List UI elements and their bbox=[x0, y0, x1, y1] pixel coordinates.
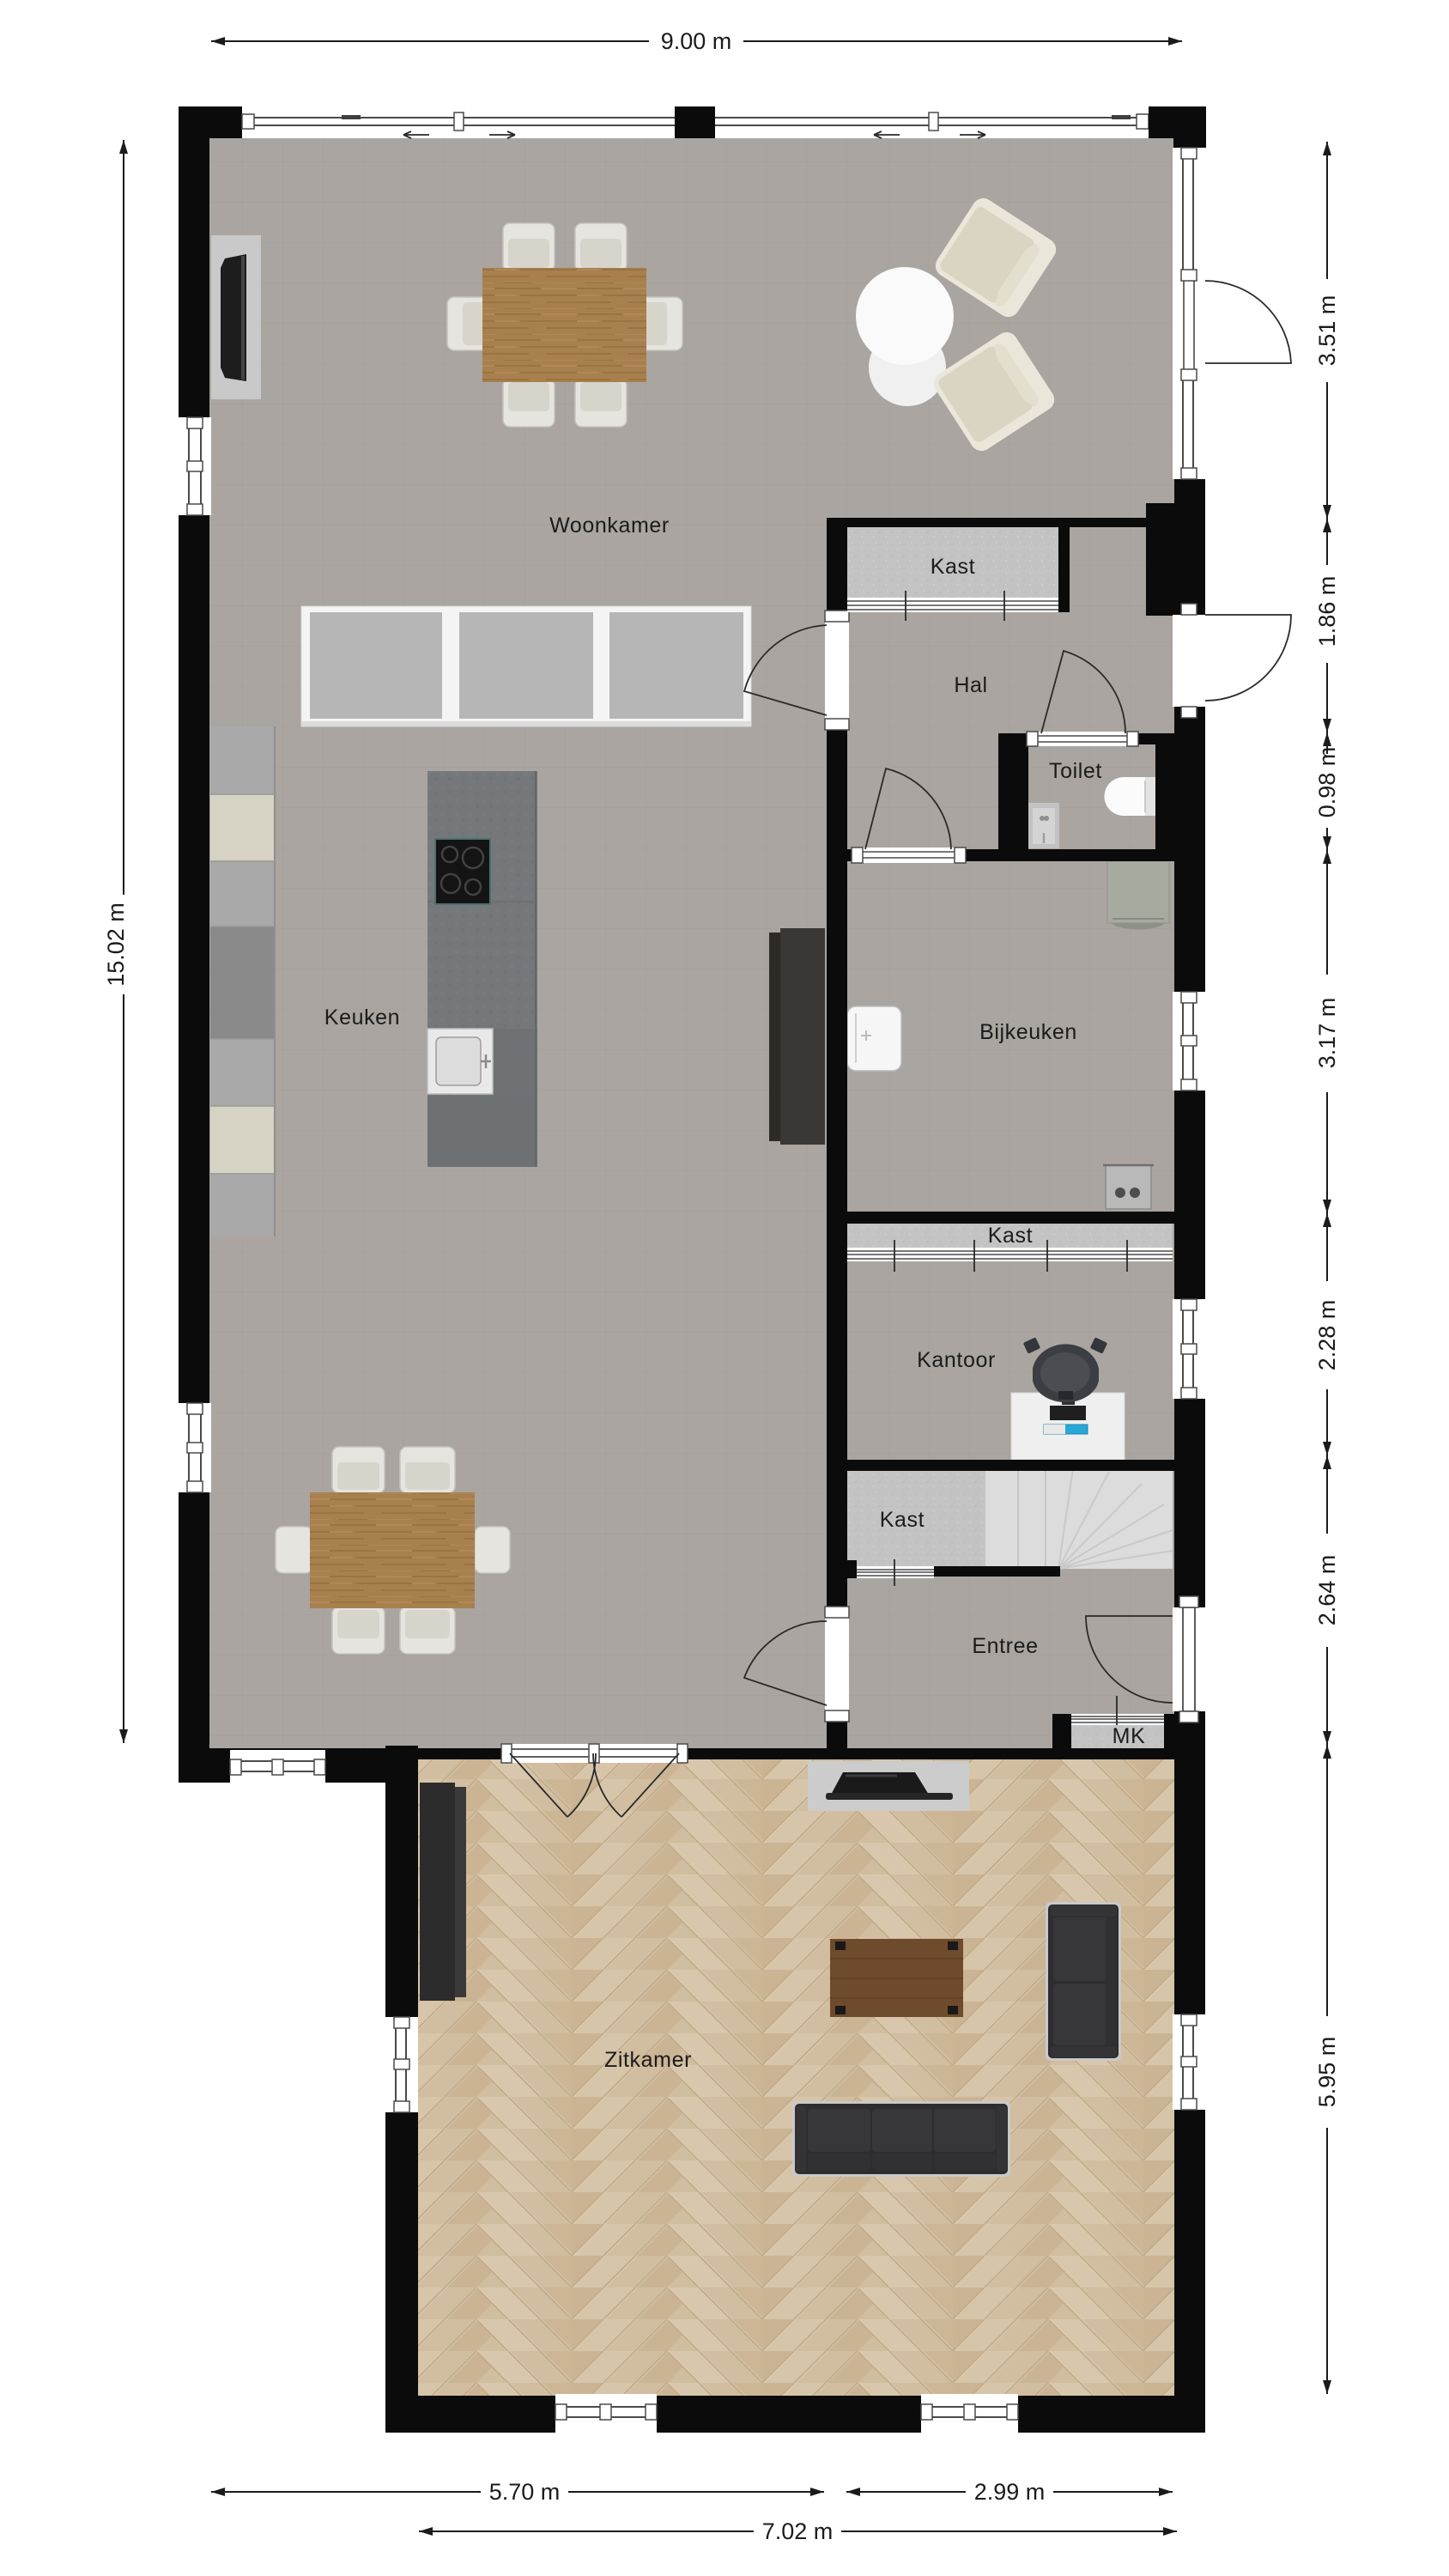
svg-text:Keuken: Keuken bbox=[324, 1005, 400, 1030]
svg-text:2.64 m: 2.64 m bbox=[1314, 1555, 1340, 1626]
svg-text:15.02 m: 15.02 m bbox=[103, 902, 129, 987]
svg-text:2.99 m: 2.99 m bbox=[974, 2479, 1046, 2505]
svg-text:3.51 m: 3.51 m bbox=[1314, 295, 1340, 367]
svg-text:MK: MK bbox=[1113, 1724, 1146, 1748]
svg-text:2.28 m: 2.28 m bbox=[1314, 1300, 1340, 1371]
svg-text:Toilet: Toilet bbox=[1049, 759, 1102, 783]
svg-text:1.86 m: 1.86 m bbox=[1314, 576, 1340, 647]
svg-text:5.95 m: 5.95 m bbox=[1314, 2037, 1340, 2108]
svg-text:7.02 m: 7.02 m bbox=[762, 2518, 834, 2544]
svg-text:Bijkeuken: Bijkeuken bbox=[979, 1020, 1077, 1044]
svg-text:Zitkamer: Zitkamer bbox=[604, 2048, 692, 2072]
svg-text:Hal: Hal bbox=[954, 673, 987, 697]
svg-text:0.98 m: 0.98 m bbox=[1314, 747, 1340, 818]
svg-text:Entree: Entree bbox=[972, 1634, 1038, 1658]
svg-text:Woonkamer: Woonkamer bbox=[549, 513, 670, 538]
svg-text:3.17 m: 3.17 m bbox=[1314, 998, 1340, 1069]
svg-text:Kantoor: Kantoor bbox=[917, 1348, 996, 1372]
svg-text:Kast: Kast bbox=[931, 555, 975, 579]
svg-text:Kast: Kast bbox=[880, 1508, 925, 1532]
svg-text:5.70 m: 5.70 m bbox=[489, 2479, 561, 2505]
svg-text:Kast: Kast bbox=[988, 1224, 1033, 1248]
svg-text:9.00 m: 9.00 m bbox=[661, 28, 732, 54]
